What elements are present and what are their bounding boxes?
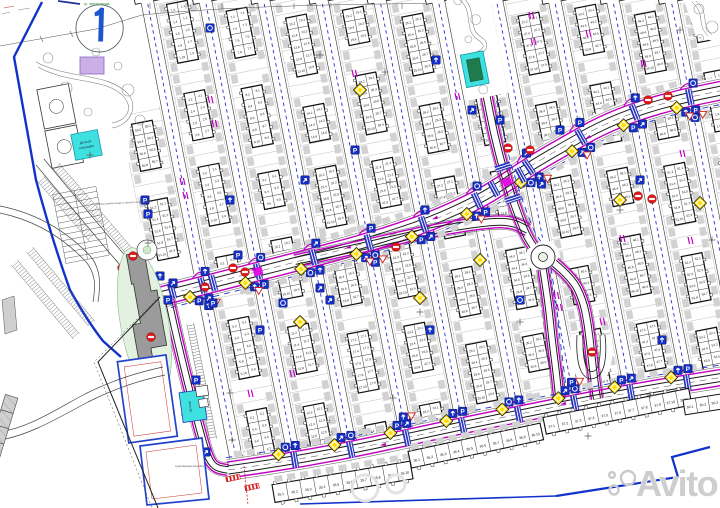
svg-text:P: P — [569, 380, 574, 387]
svg-text:P: P — [498, 117, 503, 124]
svg-text:P: P — [197, 298, 202, 305]
svg-text:P: P — [258, 327, 263, 334]
svg-text:P: P — [166, 297, 171, 304]
svg-text:P: P — [236, 252, 241, 259]
svg-text:P: P — [419, 237, 424, 244]
svg-text:1.10: 1.10 — [716, 123, 720, 128]
svg-text:P: P — [558, 127, 563, 134]
svg-text:P: P — [631, 125, 636, 132]
svg-text:P: P — [460, 409, 465, 416]
svg-text:P: P — [578, 120, 583, 127]
svg-text:P: P — [353, 147, 358, 154]
svg-text:P: P — [619, 377, 624, 384]
svg-text:P: P — [369, 226, 374, 233]
svg-text:Avito: Avito — [636, 463, 718, 504]
svg-text:P: P — [146, 211, 151, 218]
svg-text:P: P — [686, 366, 691, 373]
svg-text:P: P — [211, 300, 216, 307]
svg-text:P: P — [395, 423, 400, 430]
svg-text:P: P — [194, 377, 199, 384]
svg-text:существующая застройка: существующая застройка — [175, 465, 204, 468]
svg-text:P: P — [373, 260, 378, 267]
svg-text:P: P — [483, 209, 488, 216]
